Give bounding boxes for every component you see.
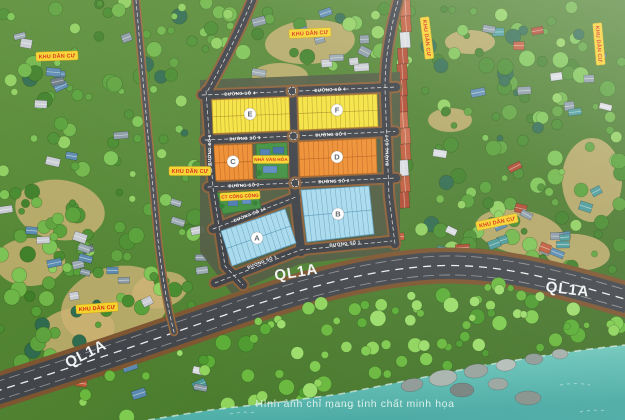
badge-C: C bbox=[227, 156, 239, 168]
svg-text:B: B bbox=[335, 210, 341, 219]
svg-text:F: F bbox=[335, 106, 340, 115]
svg-text:KHU DÂN CƯ: KHU DÂN CƯ bbox=[39, 52, 76, 60]
svg-text:KHU DÂN CƯ: KHU DÂN CƯ bbox=[172, 168, 209, 175]
street-label-s7: ĐƯỜNG SỐ 7 bbox=[385, 134, 390, 166]
svg-text:NHÀ VĂN HÓA: NHÀ VĂN HÓA bbox=[254, 155, 288, 162]
badge-D: D bbox=[331, 151, 343, 163]
masterplan-map: E F C D A B bbox=[0, 0, 625, 420]
culture-house-label: NHÀ VĂN HÓA bbox=[253, 155, 289, 163]
badge-F: F bbox=[331, 104, 343, 116]
svg-text:E: E bbox=[247, 110, 252, 119]
residential-label-topleft: KHU DÂN CƯ bbox=[36, 51, 78, 61]
map-canvas: E F C D A B bbox=[0, 0, 625, 420]
badge-E: E bbox=[244, 108, 256, 120]
badge-A: A bbox=[251, 232, 263, 244]
svg-text:D: D bbox=[334, 153, 340, 162]
svg-text:C: C bbox=[230, 157, 236, 166]
residential-label-topcenter: KHU DÂN CƯ bbox=[289, 27, 331, 38]
svg-text:A: A bbox=[254, 234, 260, 243]
street-label-s6: ĐƯỜNG SỐ 6 bbox=[207, 134, 212, 166]
disclaimer-text: Hình ảnh chỉ mang tính chất minh họa bbox=[255, 398, 454, 410]
residential-label-left: KHU DÂN CƯ bbox=[169, 167, 211, 176]
badge-B: B bbox=[332, 208, 344, 220]
